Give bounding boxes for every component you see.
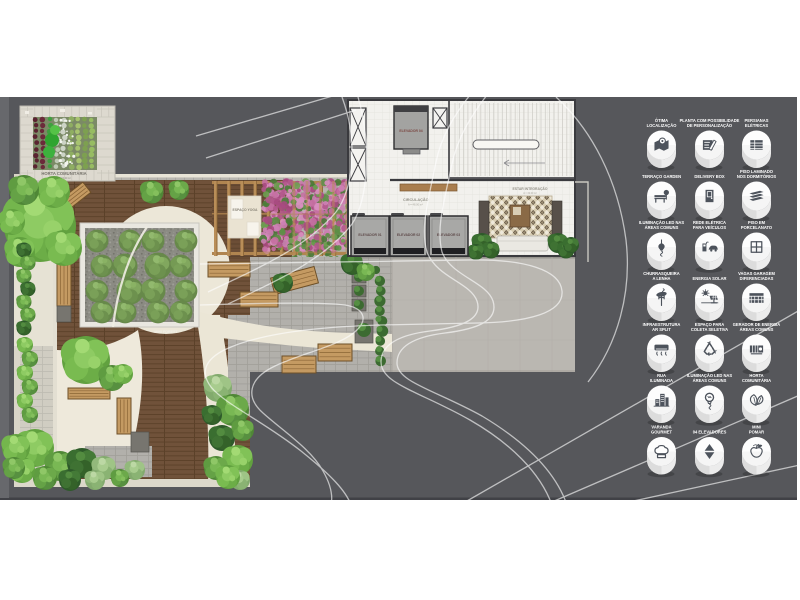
svg-text:MINI FOREST: MINI FOREST [154,330,178,334]
svg-text:A = 32.00 m²: A = 32.00 m² [523,192,537,195]
svg-text:ÁREAS COMUNS: ÁREAS COMUNS [740,327,774,332]
svg-text:HORTA COMUNITÁRIA: HORTA COMUNITÁRIA [41,171,86,176]
svg-text:ESTAR INTEGRAÇÃO: ESTAR INTEGRAÇÃO [513,186,548,191]
svg-text:COLETA SELETIVA: COLETA SELETIVA [691,327,728,332]
svg-text:DELIVERY BOX: DELIVERY BOX [694,174,725,179]
svg-text:ELEVADOR 04: ELEVADOR 04 [399,129,422,133]
svg-text:A = 48.00 m²: A = 48.00 m² [408,203,423,207]
svg-text:ENERGIA SOLAR: ENERGIA SOLAR [693,276,727,281]
svg-text:ELEVADOR 01: ELEVADOR 01 [358,233,381,237]
svg-text:ILUMINADA: ILUMINADA [650,378,673,383]
svg-text:ESPAÇO YOGA: ESPAÇO YOGA [233,208,258,212]
svg-text:PARA VEÍCULOS: PARA VEÍCULOS [693,225,726,230]
svg-text:ÁREAS COMUNS: ÁREAS COMUNS [693,378,727,383]
svg-text:A LENHA: A LENHA [652,276,670,281]
svg-text:DE PERSONALIZAÇÃO: DE PERSONALIZAÇÃO [687,123,733,128]
svg-text:AR SPLIT: AR SPLIT [652,327,671,332]
svg-text:LOCALIZAÇÃO: LOCALIZAÇÃO [647,123,678,128]
svg-text:ÁREAS COMUNS: ÁREAS COMUNS [645,225,679,230]
svg-text:ELÉTRICAS: ELÉTRICAS [745,123,768,128]
svg-text:TERRAÇO GARDEN: TERRAÇO GARDEN [642,174,681,179]
svg-text:COMUNITÁRIA: COMUNITÁRIA [742,378,771,383]
svg-text:GOURMET: GOURMET [651,430,672,435]
svg-text:DIFERENCIADAS: DIFERENCIADAS [740,276,774,281]
svg-text:04 ELEVADORES: 04 ELEVADORES [693,430,727,435]
svg-text:POMAR: POMAR [749,430,764,435]
svg-text:NOS DORMITÓRIOS: NOS DORMITÓRIOS [737,174,777,179]
svg-text:CIRCULAÇÃO: CIRCULAÇÃO [403,197,429,202]
svg-text:ELEVADOR 02: ELEVADOR 02 [397,233,420,237]
svg-text:PORCELANATO: PORCELANATO [741,225,773,230]
